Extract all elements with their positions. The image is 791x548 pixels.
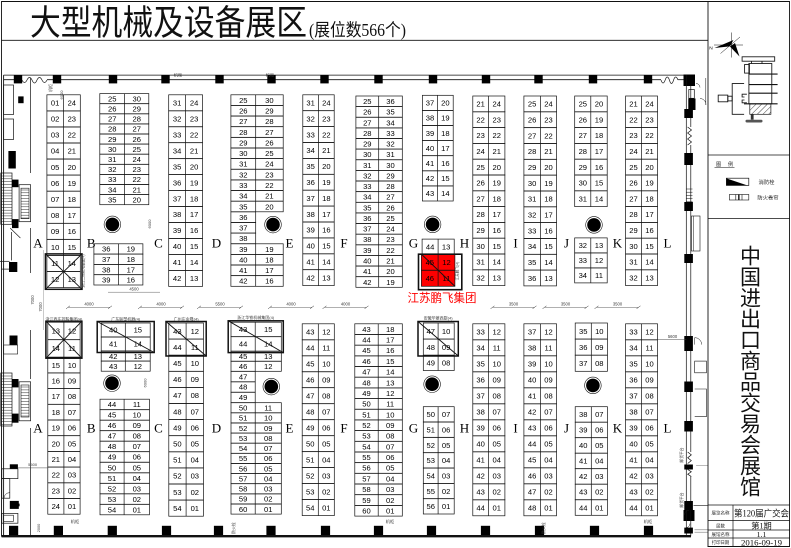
svg-text:06: 06 [595, 426, 603, 435]
svg-text:12: 12 [264, 362, 272, 371]
svg-text:22: 22 [190, 130, 198, 139]
svg-text:26: 26 [363, 108, 371, 117]
svg-text:24: 24 [52, 502, 60, 511]
svg-text:48: 48 [173, 407, 181, 416]
svg-text:53: 53 [239, 434, 247, 443]
svg-text:08: 08 [191, 391, 199, 400]
svg-text:56: 56 [426, 502, 434, 511]
svg-text:23: 23 [645, 115, 653, 124]
svg-text:17: 17 [595, 147, 603, 156]
svg-text:04: 04 [544, 456, 552, 465]
svg-text:17: 17 [52, 392, 60, 401]
svg-text:58: 58 [362, 485, 370, 494]
svg-text:30: 30 [239, 149, 247, 158]
svg-text:11: 11 [646, 344, 654, 353]
svg-text:40: 40 [306, 242, 314, 251]
svg-text:44: 44 [306, 344, 314, 353]
svg-text:第120届广交会: 第120届广交会 [734, 508, 789, 519]
svg-text:03: 03 [133, 484, 141, 493]
svg-text:37: 37 [306, 194, 314, 203]
svg-text:47: 47 [239, 372, 247, 381]
svg-text:44: 44 [426, 242, 434, 251]
svg-text:37: 37 [363, 225, 371, 234]
svg-text:K: K [613, 236, 623, 251]
svg-text:例: 例 [728, 160, 733, 168]
svg-text:02: 02 [322, 487, 330, 496]
svg-text:17: 17 [544, 211, 552, 220]
svg-text:04: 04 [442, 456, 450, 465]
svg-text:54: 54 [239, 444, 247, 453]
svg-text:36: 36 [306, 178, 314, 187]
svg-text:44: 44 [476, 504, 484, 513]
svg-text:22: 22 [52, 471, 60, 480]
svg-text:01: 01 [191, 504, 199, 513]
svg-text:35: 35 [528, 258, 536, 267]
svg-text:01: 01 [68, 502, 76, 511]
svg-text:40: 40 [173, 242, 181, 251]
svg-text:09: 09 [264, 424, 272, 433]
svg-text:29: 29 [239, 138, 247, 147]
svg-text:11: 11 [386, 400, 394, 409]
svg-text:02: 02 [595, 488, 603, 497]
svg-text:43: 43 [109, 362, 117, 371]
svg-text:14: 14 [322, 258, 330, 267]
svg-text:60: 60 [362, 506, 370, 515]
svg-text:39: 39 [363, 246, 371, 255]
svg-text:56: 56 [239, 464, 247, 473]
svg-text:09: 09 [386, 421, 394, 430]
svg-text:25: 25 [528, 100, 536, 109]
svg-text:30: 30 [265, 96, 273, 105]
svg-text:16: 16 [127, 276, 135, 285]
svg-text:40: 40 [528, 376, 536, 385]
svg-text:38: 38 [306, 210, 314, 219]
svg-text:机柜: 机柜 [71, 518, 79, 525]
svg-text:12: 12 [595, 256, 603, 265]
svg-text:34: 34 [579, 271, 587, 280]
svg-text:04: 04 [191, 456, 199, 465]
svg-text:05: 05 [51, 163, 59, 172]
svg-text:12: 12 [191, 327, 199, 336]
svg-text:01: 01 [645, 504, 653, 513]
svg-text:E: E [286, 236, 294, 251]
svg-text:第1期: 第1期 [751, 520, 771, 530]
svg-text:23: 23 [322, 114, 330, 123]
svg-text:22: 22 [132, 175, 140, 184]
svg-text:10: 10 [264, 414, 272, 423]
svg-text:12: 12 [322, 328, 330, 337]
svg-text:21: 21 [629, 100, 637, 109]
svg-text:03: 03 [191, 472, 199, 481]
svg-text:03: 03 [492, 472, 500, 481]
svg-text:A: A [33, 421, 43, 436]
svg-text:33: 33 [579, 256, 587, 265]
svg-text:36: 36 [476, 376, 484, 385]
svg-text:56: 56 [362, 464, 370, 473]
svg-text:F: F [340, 421, 347, 436]
svg-text:31: 31 [108, 155, 116, 164]
svg-text:49: 49 [426, 359, 434, 368]
svg-text:馆: 馆 [740, 476, 761, 500]
svg-text:33: 33 [239, 181, 247, 190]
svg-text:13: 13 [492, 273, 500, 282]
svg-text:23: 23 [68, 115, 76, 124]
svg-text:43: 43 [528, 424, 536, 433]
svg-text:27: 27 [476, 194, 484, 203]
svg-text:43: 43 [476, 488, 484, 497]
svg-text:15: 15 [441, 174, 449, 183]
svg-text:27: 27 [579, 131, 587, 140]
svg-text:51: 51 [173, 456, 181, 465]
svg-text:大型机械及设备展区: 大型机械及设备展区 [30, 4, 307, 43]
svg-text:50: 50 [362, 400, 370, 409]
svg-text:14: 14 [544, 258, 552, 267]
svg-text:41: 41 [109, 340, 117, 349]
svg-text:09: 09 [595, 343, 603, 352]
svg-text:32: 32 [239, 170, 247, 179]
svg-text:28: 28 [132, 115, 140, 124]
svg-text:28: 28 [239, 128, 247, 137]
svg-text:11: 11 [493, 344, 501, 353]
svg-text:03: 03 [442, 472, 450, 481]
svg-text:12: 12 [645, 328, 653, 337]
svg-text:机柜: 机柜 [644, 518, 652, 525]
svg-text:08: 08 [544, 392, 552, 401]
svg-text:14: 14 [645, 258, 653, 267]
svg-text:21: 21 [52, 455, 60, 464]
svg-text:17: 17 [441, 144, 449, 153]
svg-text:19: 19 [595, 115, 603, 124]
svg-text:12: 12 [544, 328, 552, 337]
svg-text:42: 42 [476, 472, 484, 481]
svg-text:30: 30 [386, 161, 394, 170]
svg-text:04: 04 [322, 455, 330, 464]
svg-text:41: 41 [528, 392, 536, 401]
svg-text:02: 02 [645, 488, 653, 497]
svg-text:防火卷帘: 防火卷帘 [757, 193, 778, 201]
svg-text:01: 01 [544, 504, 552, 513]
svg-text:01: 01 [492, 504, 500, 513]
svg-text:20: 20 [492, 163, 500, 172]
svg-text:32: 32 [386, 140, 394, 149]
svg-text:26: 26 [132, 135, 140, 144]
svg-text:15: 15 [322, 242, 330, 251]
svg-text:52: 52 [239, 424, 247, 433]
svg-text:07: 07 [133, 442, 141, 451]
svg-text:27: 27 [265, 128, 273, 137]
svg-text:33: 33 [363, 182, 371, 191]
svg-text:57: 57 [362, 474, 370, 483]
svg-text:3500: 3500 [613, 302, 623, 307]
svg-text:04: 04 [264, 474, 272, 483]
svg-text:44: 44 [629, 504, 637, 513]
svg-text:12: 12 [134, 362, 142, 371]
svg-text:07: 07 [191, 407, 199, 416]
svg-text:16: 16 [322, 226, 330, 235]
svg-text:D: D [212, 421, 221, 436]
svg-text:机柜: 机柜 [47, 84, 53, 92]
svg-text:38: 38 [579, 410, 587, 419]
svg-text:05: 05 [442, 441, 450, 450]
svg-text:16: 16 [595, 163, 603, 172]
svg-text:31: 31 [306, 99, 314, 108]
svg-text:23: 23 [52, 486, 60, 495]
svg-text:29: 29 [528, 163, 536, 172]
svg-text:H: H [460, 421, 469, 436]
svg-text:51: 51 [426, 425, 434, 434]
svg-text:18: 18 [492, 194, 500, 203]
svg-text:C: C [154, 236, 163, 251]
svg-text:06: 06 [68, 424, 76, 433]
svg-text:10: 10 [51, 243, 59, 252]
svg-text:02: 02 [492, 488, 500, 497]
svg-text:02: 02 [68, 486, 76, 495]
svg-text:33: 33 [386, 129, 394, 138]
svg-text:29: 29 [108, 135, 116, 144]
svg-text:22: 22 [645, 131, 653, 140]
svg-text:07: 07 [595, 410, 603, 419]
svg-text:机柜: 机柜 [386, 518, 394, 525]
svg-text:28: 28 [108, 125, 116, 134]
svg-text:06: 06 [442, 425, 450, 434]
svg-text:43: 43 [629, 488, 637, 497]
svg-text:25: 25 [132, 145, 140, 154]
svg-text:19: 19 [492, 179, 500, 188]
svg-text:28: 28 [476, 210, 484, 219]
svg-text:12: 12 [492, 328, 500, 337]
svg-text:A: A [33, 236, 43, 251]
svg-text:18: 18 [127, 255, 135, 264]
svg-text:20: 20 [265, 202, 273, 211]
svg-text:55: 55 [239, 454, 247, 463]
svg-text:06: 06 [51, 179, 59, 188]
svg-text:24: 24 [386, 225, 394, 234]
svg-text:46: 46 [528, 472, 536, 481]
svg-text:4000: 4000 [156, 302, 166, 307]
svg-text:24: 24 [132, 155, 140, 164]
svg-text:21: 21 [476, 100, 484, 109]
svg-text:19: 19 [386, 278, 394, 287]
svg-text:08: 08 [322, 391, 330, 400]
svg-text:41: 41 [363, 267, 371, 276]
svg-text:16: 16 [386, 346, 394, 355]
svg-text:江苏鹏飞集团: 江苏鹏飞集团 [408, 291, 477, 305]
svg-text:06: 06 [645, 424, 653, 433]
svg-text:10: 10 [442, 327, 450, 336]
svg-text:32: 32 [306, 114, 314, 123]
svg-text:39: 39 [306, 226, 314, 235]
svg-text:32: 32 [173, 115, 181, 124]
svg-text:2016-09-19: 2016-09-19 [741, 537, 783, 547]
svg-text:41: 41 [629, 456, 637, 465]
svg-text:G: G [409, 236, 418, 251]
svg-text:21: 21 [386, 257, 394, 266]
svg-text:30: 30 [629, 242, 637, 251]
svg-text:51: 51 [108, 474, 116, 483]
svg-text:05: 05 [544, 440, 552, 449]
svg-text:43: 43 [362, 325, 370, 334]
svg-text:44: 44 [362, 336, 370, 345]
svg-text:K: K [613, 421, 623, 436]
svg-text:26: 26 [239, 107, 247, 116]
svg-text:4000: 4000 [341, 302, 351, 307]
svg-text:06: 06 [544, 424, 552, 433]
svg-text:24: 24 [265, 160, 273, 169]
svg-text:35: 35 [306, 162, 314, 171]
svg-text:13: 13 [190, 274, 198, 283]
svg-text:06: 06 [492, 424, 500, 433]
svg-text:53: 53 [426, 456, 434, 465]
svg-text:43: 43 [579, 488, 587, 497]
svg-text:05: 05 [645, 440, 653, 449]
svg-text:32: 32 [476, 273, 484, 282]
svg-text:49: 49 [239, 393, 247, 402]
svg-text:53: 53 [173, 488, 181, 497]
svg-text:09: 09 [322, 376, 330, 385]
svg-text:31: 31 [476, 258, 484, 267]
svg-text:02: 02 [442, 487, 450, 496]
svg-text:24: 24 [492, 100, 500, 109]
svg-text:28: 28 [629, 210, 637, 219]
svg-text:31: 31 [173, 99, 181, 108]
svg-text:22: 22 [322, 130, 330, 139]
svg-text:30: 30 [132, 94, 140, 103]
svg-text:20: 20 [322, 162, 330, 171]
svg-text:36: 36 [173, 178, 181, 187]
svg-text:27: 27 [239, 117, 247, 126]
svg-text:I: I [513, 421, 517, 436]
svg-text:16: 16 [544, 226, 552, 235]
svg-text:34: 34 [363, 193, 371, 202]
svg-text:10: 10 [133, 411, 141, 420]
svg-text:48: 48 [426, 343, 434, 352]
svg-text:25: 25 [579, 100, 587, 109]
svg-text:30: 30 [363, 150, 371, 159]
svg-text:15: 15 [595, 179, 603, 188]
svg-text:35: 35 [579, 327, 587, 336]
svg-text:41: 41 [306, 258, 314, 267]
svg-text:19: 19 [190, 178, 198, 187]
svg-text:07: 07 [68, 408, 76, 417]
svg-text:4000: 4000 [286, 302, 296, 307]
svg-text:05: 05 [133, 463, 141, 472]
svg-text:16: 16 [441, 159, 449, 168]
svg-text:28: 28 [386, 182, 394, 191]
svg-text:33: 33 [173, 130, 181, 139]
svg-text:49: 49 [108, 453, 116, 462]
svg-text:29: 29 [579, 163, 587, 172]
svg-text:13: 13 [134, 352, 142, 361]
svg-text:44: 44 [239, 340, 247, 349]
svg-text:05: 05 [68, 439, 76, 448]
svg-text:55: 55 [362, 453, 370, 462]
svg-text:46: 46 [306, 376, 314, 385]
svg-text:07: 07 [442, 410, 450, 419]
svg-text:08: 08 [492, 392, 500, 401]
svg-text:34: 34 [629, 344, 637, 353]
svg-text:34: 34 [528, 242, 536, 251]
svg-text:20: 20 [645, 163, 653, 172]
svg-text:42: 42 [426, 174, 434, 183]
svg-text:19: 19 [544, 179, 552, 188]
svg-text:机柜: 机柜 [174, 72, 182, 79]
svg-text:55: 55 [426, 487, 434, 496]
svg-text:11: 11 [322, 344, 330, 353]
svg-text:39: 39 [528, 360, 536, 369]
svg-text:35: 35 [173, 162, 181, 171]
svg-text:26: 26 [579, 115, 587, 124]
svg-text:07: 07 [492, 408, 500, 417]
svg-text:36: 36 [528, 274, 536, 283]
svg-text:2000: 2000 [37, 524, 41, 532]
svg-text:51: 51 [239, 414, 247, 423]
svg-text:21: 21 [492, 147, 500, 156]
svg-text:安徽华菱西厨(4): 安徽华菱西厨(4) [424, 315, 454, 321]
svg-text:07: 07 [264, 444, 272, 453]
svg-text:54: 54 [426, 472, 434, 481]
svg-text:39: 39 [476, 424, 484, 433]
svg-text:53: 53 [362, 432, 370, 441]
svg-text:54: 54 [362, 442, 370, 451]
svg-text:13: 13 [264, 352, 272, 361]
svg-text:40: 40 [476, 440, 484, 449]
svg-text:L: L [664, 421, 672, 436]
svg-text:03: 03 [322, 471, 330, 480]
svg-text:60: 60 [239, 505, 247, 514]
svg-text:36: 36 [363, 214, 371, 223]
svg-text:39: 39 [102, 276, 110, 285]
svg-text:30: 30 [579, 179, 587, 188]
svg-text:37: 37 [102, 255, 110, 264]
svg-text:27: 27 [108, 115, 116, 124]
svg-text:13: 13 [386, 378, 394, 387]
svg-text:27: 27 [528, 131, 536, 140]
svg-text:F: F [340, 236, 347, 251]
svg-text:15: 15 [264, 325, 272, 334]
svg-text:36: 36 [386, 97, 394, 106]
svg-text:26: 26 [108, 105, 116, 114]
svg-text:浙江二商机电集团(4): 浙江二商机电集团(4) [81, 254, 86, 287]
svg-text:L: L [664, 236, 672, 251]
svg-text:01: 01 [442, 502, 450, 511]
svg-text:04: 04 [51, 147, 59, 156]
svg-text:卸货平台: 卸货平台 [679, 492, 684, 507]
svg-text:18: 18 [52, 408, 60, 417]
svg-text:34: 34 [239, 192, 247, 201]
svg-text:15: 15 [386, 357, 394, 366]
svg-text:42: 42 [239, 277, 247, 286]
svg-text:39: 39 [426, 129, 434, 138]
svg-text:39: 39 [629, 424, 637, 433]
svg-text:02: 02 [386, 496, 394, 505]
svg-text:21: 21 [68, 147, 76, 156]
svg-text:06: 06 [191, 423, 199, 432]
svg-text:45: 45 [239, 352, 247, 361]
svg-text:13: 13 [645, 273, 653, 282]
svg-text:20: 20 [68, 163, 76, 172]
svg-text:26: 26 [528, 116, 536, 125]
svg-text:44: 44 [528, 440, 536, 449]
svg-text:50: 50 [173, 440, 181, 449]
svg-text:19: 19 [52, 424, 60, 433]
svg-text:08: 08 [595, 359, 603, 368]
svg-text:32: 32 [108, 165, 116, 174]
svg-text:23: 23 [544, 116, 552, 125]
svg-text:19: 19 [127, 245, 135, 254]
svg-text:47: 47 [306, 391, 314, 400]
svg-text:33: 33 [528, 226, 536, 235]
svg-text:D: D [212, 236, 221, 251]
